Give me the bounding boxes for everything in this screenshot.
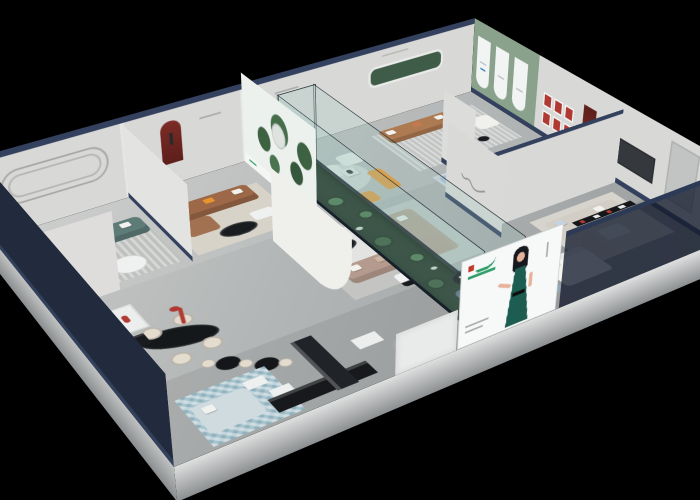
red-framed-picture [564,104,574,123]
tv-panel [615,137,655,184]
dining-chair [169,311,197,328]
black-display-bench [290,335,359,390]
dining-chair [137,325,166,342]
banner-logo-red-icon [468,265,474,273]
banner-side-text [546,242,549,258]
showroom-render [0,0,700,500]
red-floor-lamp [178,307,187,324]
dining-chair [167,350,197,368]
woman-arm [528,271,533,287]
red-framed-picture [543,92,553,111]
red-arch-niche [159,118,183,166]
wall-caption-text [382,48,408,57]
dining-chair [198,334,227,351]
dining-table-black-oval [136,320,224,355]
black-bistro-table [251,355,284,374]
light-blue-bench-bed [189,387,268,435]
white-display-block [269,383,296,398]
black-bistro-table [212,354,245,373]
stool [236,357,256,369]
isometric-scene [0,92,700,467]
white-console [350,331,384,349]
stool [252,371,272,383]
woman-arm [497,283,511,288]
stool [276,357,296,369]
red-floor-lamp-shade [168,305,182,313]
red-framed-picture [553,98,563,117]
woman-dress [505,263,532,328]
green-inset-shelf [368,47,443,89]
red-framed-picture [541,109,551,128]
wall-caption-text [199,112,221,120]
white-display-block [242,375,269,390]
stool [199,358,218,370]
